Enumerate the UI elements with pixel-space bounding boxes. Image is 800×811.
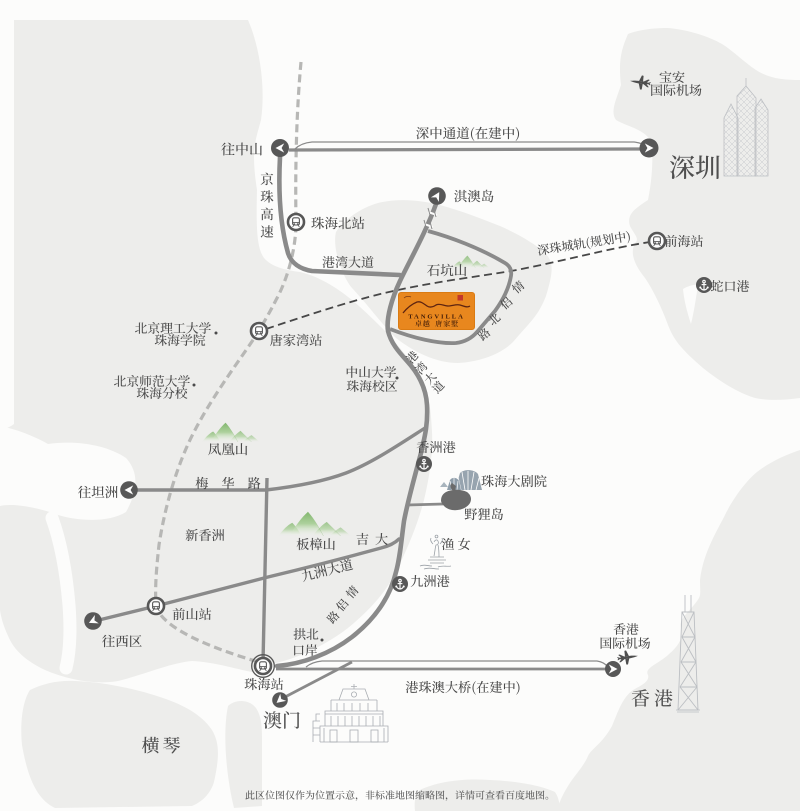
svg-text:TANGVILLA: TANGVILLA xyxy=(408,314,465,321)
